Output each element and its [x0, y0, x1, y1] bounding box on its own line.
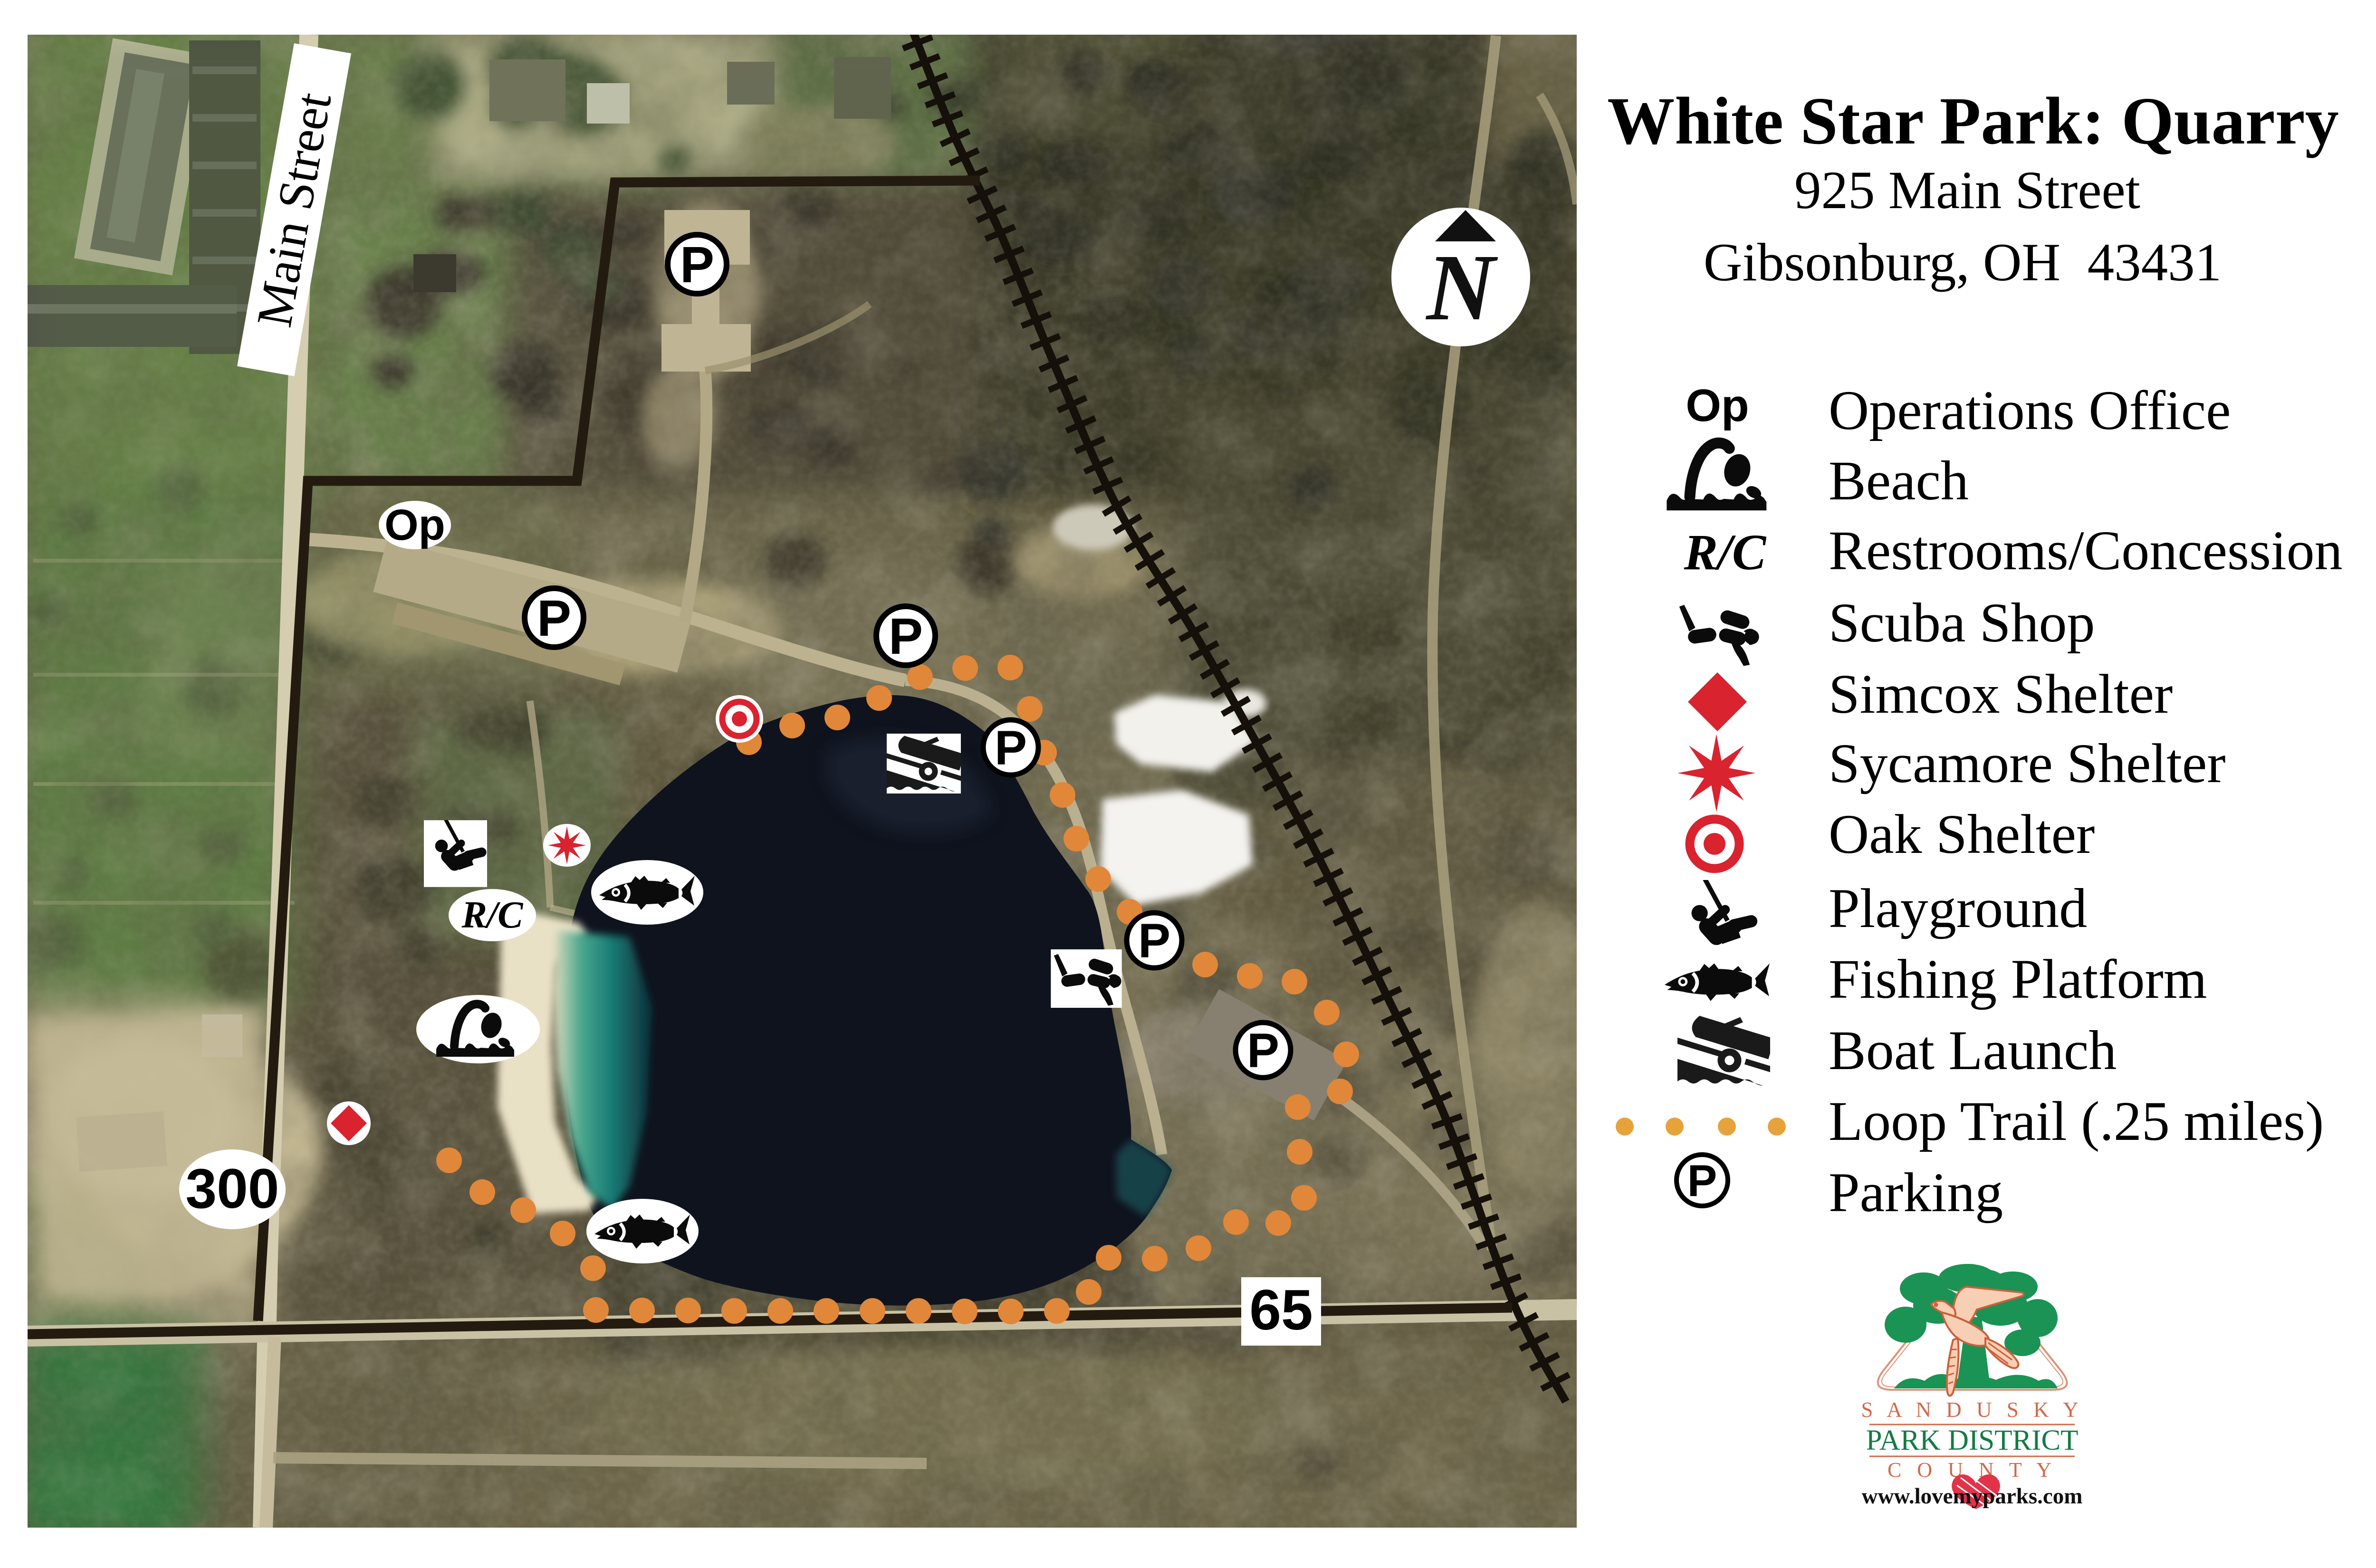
svg-text:White Star Park: Quarry: White Star Park: Quarry — [1607, 83, 2338, 158]
svg-text:Operations Office: Operations Office — [1829, 379, 2231, 441]
svg-text:P: P — [1138, 914, 1170, 968]
svg-text:925 Main Street: 925 Main Street — [1794, 161, 2140, 220]
svg-text:N: N — [1426, 235, 1498, 340]
svg-text:Parking: Parking — [1829, 1161, 2003, 1224]
svg-text:Playground: Playground — [1829, 877, 2087, 939]
svg-text:Restrooms/Concession: Restrooms/Concession — [1829, 519, 2343, 582]
svg-text:Scuba Shop: Scuba Shop — [1829, 592, 2095, 654]
svg-text:R/C: R/C — [461, 894, 524, 936]
svg-text:Fishing Platform: Fishing Platform — [1829, 948, 2207, 1010]
svg-text:P: P — [889, 607, 923, 665]
svg-text:P: P — [680, 236, 714, 293]
svg-text:Simcox Shelter: Simcox Shelter — [1829, 663, 2173, 725]
svg-text:R/C: R/C — [1684, 525, 1767, 581]
svg-text:Oak Shelter: Oak Shelter — [1829, 803, 2095, 865]
svg-text:www.lovemyparks.com: www.lovemyparks.com — [1862, 1484, 2083, 1509]
svg-text:Beach: Beach — [1829, 449, 1969, 512]
svg-text:Op: Op — [1686, 380, 1749, 431]
svg-text:65: 65 — [1249, 1278, 1313, 1342]
svg-text:300: 300 — [186, 1157, 279, 1220]
svg-text:PARK DISTRICT: PARK DISTRICT — [1866, 1425, 2079, 1456]
svg-text:P: P — [537, 589, 571, 647]
svg-text:S A N D U S K Y: S A N D U S K Y — [1861, 1398, 2083, 1422]
svg-text:P: P — [1687, 1156, 1717, 1205]
svg-text:P: P — [995, 721, 1027, 775]
svg-text:Sycamore Shelter: Sycamore Shelter — [1829, 732, 2226, 794]
svg-text:P: P — [1247, 1023, 1279, 1078]
svg-text:Boat Launch: Boat Launch — [1829, 1019, 2117, 1081]
svg-text:Loop Trail (.25 miles): Loop Trail (.25 miles) — [1829, 1090, 2324, 1152]
svg-text:Gibsonburg, OH 43431: Gibsonburg, OH 43431 — [1704, 233, 2222, 292]
svg-text:Op: Op — [384, 501, 445, 549]
